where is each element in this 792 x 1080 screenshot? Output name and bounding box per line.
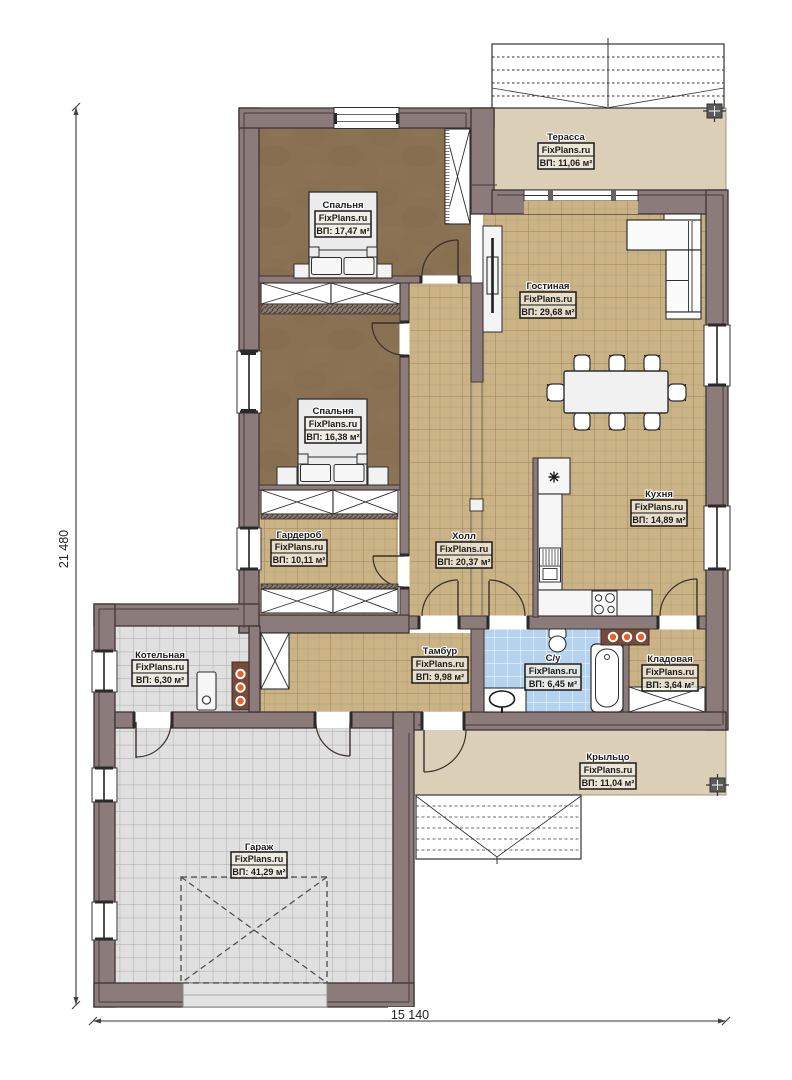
svg-text:15 140: 15 140 (391, 1008, 429, 1022)
svg-text:FixPlans.ru: FixPlans.ru (309, 419, 358, 429)
svg-text:FixPlans.ru: FixPlans.ru (235, 854, 284, 864)
svg-text:FixPlans.ru: FixPlans.ru (635, 502, 684, 512)
svg-text:С/у: С/у (546, 653, 562, 664)
svg-text:Гостиная: Гостиная (527, 281, 570, 292)
svg-text:ВП: 16,38 м²: ВП: 16,38 м² (306, 432, 359, 442)
svg-text:ВП: 11,04 м²: ВП: 11,04 м² (582, 778, 635, 788)
svg-text:ВП: 9,98 м²: ВП: 9,98 м² (416, 672, 464, 682)
svg-text:Кладовая: Кладовая (647, 654, 693, 665)
svg-text:FixPlans.ru: FixPlans.ru (542, 145, 591, 155)
svg-text:FixPlans.ru: FixPlans.ru (646, 667, 695, 677)
svg-text:Тамбур: Тамбур (423, 646, 458, 657)
svg-text:FixPlans.ru: FixPlans.ru (319, 213, 368, 223)
svg-text:FixPlans.ru: FixPlans.ru (136, 662, 185, 672)
svg-text:ВП: 17,47 м²: ВП: 17,47 м² (316, 226, 369, 236)
svg-text:FixPlans.ru: FixPlans.ru (529, 666, 578, 676)
svg-text:ВП: 3,64 м²: ВП: 3,64 м² (646, 680, 694, 690)
svg-text:ВП: 6,30 м²: ВП: 6,30 м² (136, 675, 184, 685)
svg-text:ВП: 41,29 м²: ВП: 41,29 м² (232, 867, 285, 877)
svg-text:ВП: 14,89 м²: ВП: 14,89 м² (632, 515, 685, 525)
svg-text:FixPlans.ru: FixPlans.ru (416, 659, 465, 669)
svg-text:ВП: 6,45 м²: ВП: 6,45 м² (529, 679, 577, 689)
svg-text:21 480: 21 480 (57, 530, 71, 568)
svg-text:ВП: 10,11 м²: ВП: 10,11 м² (273, 555, 326, 565)
svg-text:ВП: 29,68 м²: ВП: 29,68 м² (521, 307, 574, 317)
svg-text:Спальня: Спальня (322, 200, 363, 211)
svg-text:Терасса: Терасса (547, 132, 585, 143)
svg-text:FixPlans.ru: FixPlans.ru (584, 765, 633, 775)
svg-text:FixPlans.ru: FixPlans.ru (524, 294, 573, 304)
svg-text:Холл: Холл (452, 531, 476, 542)
svg-text:Крыльцо: Крыльцо (586, 752, 629, 763)
svg-text:Кухня: Кухня (645, 489, 673, 500)
svg-text:ВП: 11,06 м²: ВП: 11,06 м² (540, 158, 593, 168)
svg-text:ВП: 20,37 м²: ВП: 20,37 м² (437, 557, 490, 567)
svg-text:FixPlans.ru: FixPlans.ru (275, 542, 324, 552)
svg-text:Спальня: Спальня (312, 406, 353, 417)
svg-text:FixPlans.ru: FixPlans.ru (440, 544, 489, 554)
